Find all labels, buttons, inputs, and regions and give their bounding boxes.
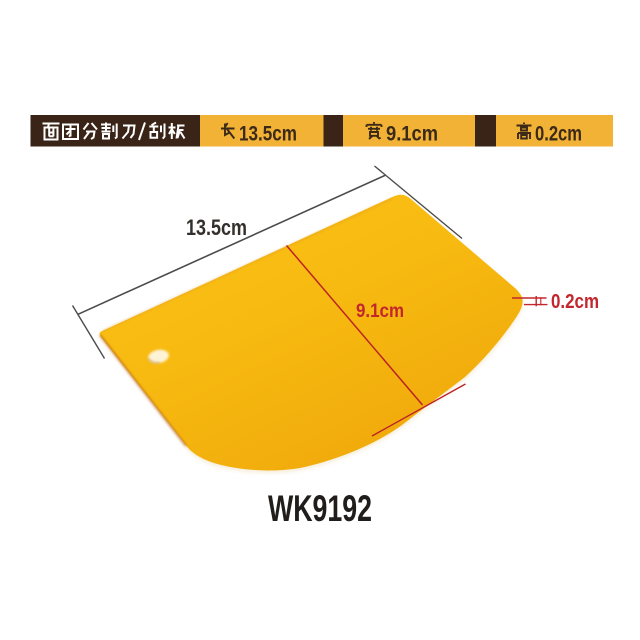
svg-text:0.2cm: 0.2cm: [551, 291, 599, 313]
svg-text:9.1cm: 9.1cm: [356, 301, 404, 322]
svg-text:13.5cm: 13.5cm: [239, 123, 297, 146]
svg-text:13.5cm: 13.5cm: [186, 215, 247, 240]
svg-text:WK9192: WK9192: [268, 488, 372, 529]
svg-text:9.1cm: 9.1cm: [386, 123, 438, 146]
svg-text:0.2cm: 0.2cm: [535, 123, 582, 146]
